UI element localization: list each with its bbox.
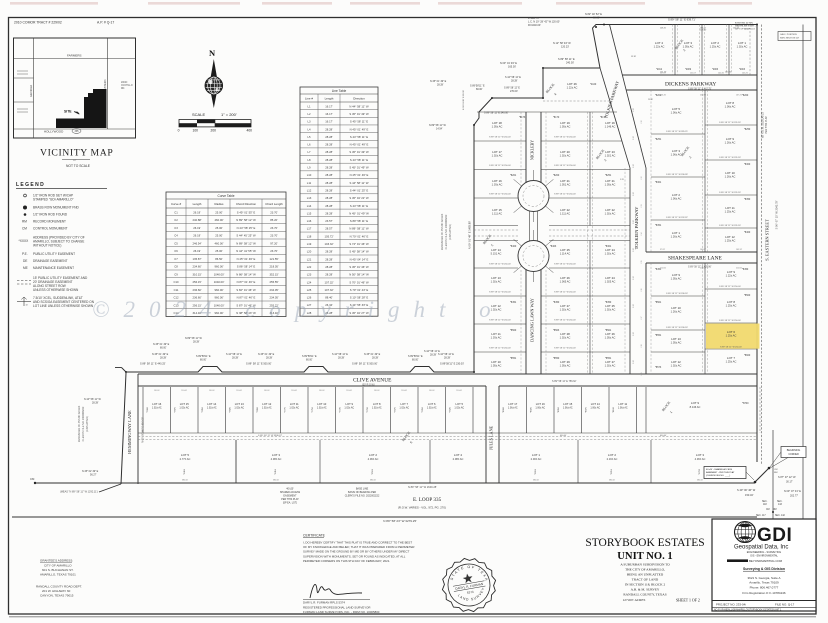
svg-text:2.28': 2.28' xyxy=(633,247,635,251)
svg-text:Line #: Line # xyxy=(305,96,313,100)
svg-text:1.02± AC: 1.02± AC xyxy=(289,407,299,410)
svg-text:110.00': 110.00' xyxy=(236,390,242,392)
svg-text:LOT 4: LOT 4 xyxy=(655,41,663,45)
svg-text:1.25± AC: 1.25± AC xyxy=(725,210,736,214)
svg-text:LOT 16: LOT 16 xyxy=(536,402,545,406)
svg-text:26.19': 26.19' xyxy=(193,226,201,230)
svg-text:L24: L24 xyxy=(307,280,312,284)
svg-text:*7675: *7675 xyxy=(395,406,397,413)
svg-text:LOT 10: LOT 10 xyxy=(491,360,501,364)
svg-text:56.27': 56.27' xyxy=(90,474,97,477)
svg-text:163.32': 163.32' xyxy=(736,249,743,251)
svg-text:S 45° 04' 22" W: S 45° 04' 22" W xyxy=(349,196,369,200)
svg-text:*8551: *8551 xyxy=(510,357,517,360)
svg-text:CALC. POSITION: CALC. POSITION xyxy=(780,33,797,36)
svg-text:ME: ME xyxy=(23,266,28,270)
svg-text:80.00': 80.00' xyxy=(200,359,207,362)
svg-text:N 00°01'49" E 80.00': N 00°01'49" E 80.00' xyxy=(463,89,465,110)
svg-text:BEYONDMAPPING.COM: BEYONDMAPPING.COM xyxy=(749,559,783,563)
svg-text:Amarillo, Texas 79109: Amarillo, Texas 79109 xyxy=(749,581,779,585)
svg-text:1.02± AC: 1.02± AC xyxy=(491,308,502,312)
svg-text:S 89° 58' 11" W 231.18': S 89° 58' 11" W 231.18' xyxy=(719,192,741,194)
svg-text:S 89° 58' 11" E: S 89° 58' 11" E xyxy=(350,219,368,223)
svg-text:270.00': 270.00' xyxy=(510,90,518,93)
svg-text:110.00': 110.00' xyxy=(154,390,160,392)
svg-text:S 89° 58' 11" W 250.00': S 89° 58' 11" W 250.00' xyxy=(554,348,576,350)
svg-text:*8350: *8350 xyxy=(605,301,612,304)
svg-text:23.70': 23.70' xyxy=(270,226,278,230)
svg-text:28.28': 28.28' xyxy=(325,143,333,147)
svg-text:BEGINNING: BEGINNING xyxy=(787,449,801,452)
svg-text:RD.: RD. xyxy=(121,88,125,90)
svg-text:*8251: *8251 xyxy=(605,174,612,177)
svg-text:Surveying & GIS Division: Surveying & GIS Division xyxy=(743,567,785,571)
svg-text:266.45': 266.45' xyxy=(660,95,667,97)
svg-text:LOT 2: LOT 2 xyxy=(369,453,377,457)
svg-text:2.28': 2.28' xyxy=(633,163,635,167)
svg-text:S 44° 01' 25" E: S 44° 01' 25" E xyxy=(350,188,369,192)
svg-text:C1: C1 xyxy=(174,210,178,214)
svg-text:*7700: *7700 xyxy=(367,406,369,413)
svg-text:L1: L1 xyxy=(307,104,311,108)
svg-text:LOT 16: LOT 16 xyxy=(605,121,615,125)
svg-text:*8551: *8551 xyxy=(605,357,612,360)
svg-text:*2501: *2501 xyxy=(372,468,374,475)
svg-text:C2: C2 xyxy=(174,218,178,222)
svg-text:LOT 14: LOT 14 xyxy=(207,402,216,406)
svg-text:DE: DE xyxy=(23,259,27,263)
svg-text:S 89° 58' 11" W 250.00': S 89° 58' 11" W 250.00' xyxy=(489,194,511,196)
svg-text:1.26± AC: 1.26± AC xyxy=(725,141,736,145)
svg-text:L19: L19 xyxy=(307,242,312,246)
svg-text:2010 COMOR TRACT # 229/02: 2010 COMOR TRACT # 229/02 xyxy=(14,21,62,25)
svg-text:28.28': 28.28' xyxy=(325,211,333,215)
svg-text:S 89° 58' 11" W 3936.87': S 89° 58' 11" W 3936.87' xyxy=(258,435,283,437)
svg-text:LOT 7: LOT 7 xyxy=(401,402,409,406)
svg-text:28.28': 28.28' xyxy=(325,127,333,131)
svg-text:201 W. HIGHWAY 60: 201 W. HIGHWAY 60 xyxy=(42,589,71,593)
svg-text:S 89° 58' 11" E 500.00': S 89° 58' 11" E 500.00' xyxy=(246,363,272,366)
svg-text:L19: L19 xyxy=(641,373,643,376)
svg-text:S 89° 58' 11" W 250.00': S 89° 58' 11" W 250.00' xyxy=(489,165,511,167)
svg-text:*8550: *8550 xyxy=(553,357,560,360)
svg-text:EASEMENT - PER THIS PLAT: EASEMENT - PER THIS PLAT xyxy=(706,471,735,474)
svg-text:0: 0 xyxy=(178,129,180,133)
svg-text:1.02± AC: 1.02± AC xyxy=(492,154,503,158)
svg-text:*8450: *8450 xyxy=(553,301,560,304)
svg-text:234.05': 234.05' xyxy=(270,288,279,292)
svg-text:L4: L4 xyxy=(307,127,311,131)
svg-text:N 44° 41' 55" W: N 44° 41' 55" W xyxy=(236,249,256,253)
svg-text:LOT 2: LOT 2 xyxy=(672,193,680,197)
svg-text:S 89° 58' 11" W 250.00': S 89° 58' 11" W 250.00' xyxy=(719,286,741,288)
svg-text:382.00': 382.00' xyxy=(609,480,616,482)
svg-text:1.05± AC: 1.05± AC xyxy=(560,125,571,129)
svg-text:1.25± AC: 1.25± AC xyxy=(726,304,737,308)
svg-text:N 44° 58' 11" W: N 44° 58' 11" W xyxy=(349,104,369,108)
svg-text:LOT 2: LOT 2 xyxy=(608,453,616,457)
svg-text:N 50° 58' 14" W: N 50° 58' 14" W xyxy=(349,273,369,277)
svg-text:1" = 200': 1" = 200' xyxy=(221,112,237,117)
svg-text:1.146 AC: 1.146 AC xyxy=(605,125,616,129)
svg-text:(UNPLATTED): (UNPLATTED) xyxy=(86,416,89,432)
svg-text:LOT 9: LOT 9 xyxy=(727,270,735,274)
svg-text:S 89° 58' 11" W 250.00': S 89° 58' 11" W 250.00' xyxy=(554,292,576,294)
svg-text:1.06± AC: 1.06± AC xyxy=(671,111,682,115)
svg-text:1.111 AC: 1.111 AC xyxy=(560,212,570,216)
svg-text:28.28': 28.28' xyxy=(430,354,437,357)
svg-text:26.19': 26.19' xyxy=(193,234,201,238)
svg-text:1.25± AC: 1.25± AC xyxy=(726,360,737,364)
svg-text:BEING AN UNPLATTED: BEING AN UNPLATTED xyxy=(627,573,664,577)
svg-text:80.00': 80.00' xyxy=(412,359,419,362)
svg-text:1.065 AC: 1.065 AC xyxy=(560,280,571,284)
svg-text:PER THIS PLAT: PER THIS PLAT xyxy=(765,116,768,134)
svg-text:*8301: *8301 xyxy=(605,245,612,248)
svg-text:1.05± AC: 1.05± AC xyxy=(492,125,503,129)
svg-text:1.25± AC: 1.25± AC xyxy=(725,239,736,243)
svg-text:110.00': 110.00' xyxy=(319,390,325,392)
svg-text:30.17': 30.17' xyxy=(786,481,793,484)
svg-text:N 44° 58' 25" E: N 44° 58' 25" E xyxy=(237,226,256,230)
svg-text:1.05± AC: 1.05± AC xyxy=(605,183,616,187)
svg-text:CM: CM xyxy=(766,509,770,511)
svg-text:660.00': 660.00' xyxy=(660,435,667,437)
svg-text:LOT 1: LOT 1 xyxy=(532,453,540,457)
svg-text:ENGINEERING - SURVEYING: ENGINEERING - SURVEYING xyxy=(747,551,781,554)
svg-text:N 89° 58' 11" W: N 89° 58' 11" W xyxy=(185,337,202,340)
svg-text:*8000: *8000 xyxy=(503,406,505,413)
svg-text:*8350: *8350 xyxy=(744,198,751,201)
svg-text:LOT 4: LOT 4 xyxy=(454,453,462,457)
svg-text:L3: L3 xyxy=(307,120,311,124)
svg-text:28.28': 28.28' xyxy=(325,196,333,200)
svg-text:SCALE: SCALE xyxy=(192,112,205,117)
svg-text:246.54': 246.54' xyxy=(193,241,202,245)
svg-text:157.07': 157.07' xyxy=(660,73,667,75)
svg-text:LOT 9: LOT 9 xyxy=(726,137,734,141)
svg-text:N 45° 01' 49" E: N 45° 01' 49" E xyxy=(350,127,369,131)
svg-text:*8501: *8501 xyxy=(605,329,612,332)
svg-text:L8: L8 xyxy=(307,158,311,162)
svg-text:LOT 6: LOT 6 xyxy=(727,330,735,334)
svg-text:28.28': 28.28' xyxy=(325,204,333,208)
svg-text:1.26± AC: 1.26± AC xyxy=(671,235,682,239)
svg-text:RM: RM xyxy=(774,472,778,474)
svg-text:S 89° 58' 11" W 250.00': S 89° 58' 11" W 250.00' xyxy=(554,165,576,167)
svg-text:4.06± AC: 4.06± AC xyxy=(368,457,379,461)
svg-text:S 89° 58' 11" E: S 89° 58' 11" E xyxy=(558,58,575,61)
svg-text:28.57': 28.57' xyxy=(325,227,333,231)
svg-text:28.28': 28.28' xyxy=(325,173,333,177)
svg-text:N 45° 01' 49" E: N 45° 01' 49" E xyxy=(430,80,447,83)
svg-text:C11: C11 xyxy=(174,288,179,292)
svg-text:LOT 14: LOT 14 xyxy=(491,248,501,252)
svg-text:LOT 26: LOT 26 xyxy=(605,332,615,336)
svg-text:310.15': 310.15' xyxy=(193,272,202,276)
svg-text:*7725: *7725 xyxy=(340,406,342,413)
svg-text:660.00': 660.00' xyxy=(560,435,567,437)
svg-text:121.55': 121.55' xyxy=(270,257,279,261)
svg-text:S 89° 58' 11" E 467.75': S 89° 58' 11" E 467.75' xyxy=(688,88,712,90)
svg-text:S 44° 45' 25" W: S 44° 45' 25" W xyxy=(236,234,256,238)
svg-text:*8200: *8200 xyxy=(742,94,749,97)
svg-text:S 89° 58' 11" W 232.32': S 89° 58' 11" W 232.32' xyxy=(666,217,688,219)
svg-text:1040.00': 1040.00' xyxy=(214,280,225,284)
svg-text:UNLESS OTHERWISE SHOWN: UNLESS OTHERWISE SHOWN xyxy=(33,288,79,292)
svg-text:CONTROL MONUMENT: CONTROL MONUMENT xyxy=(33,226,68,230)
svg-text:N 89° 58' 11" W: N 89° 58' 11" W xyxy=(349,227,369,231)
svg-text:151.07': 151.07' xyxy=(690,73,697,75)
svg-text:LOT 13: LOT 13 xyxy=(671,337,681,341)
svg-text:*XXXX: *XXXX xyxy=(19,239,30,243)
svg-text:S 45° 01' 55" E: S 45° 01' 55" E xyxy=(237,210,256,214)
svg-text:CORNER: CORNER xyxy=(788,453,799,456)
svg-text:*7625: *7625 xyxy=(450,406,452,413)
svg-text:N 70° 01' 46" E: N 70° 01' 46" E xyxy=(350,234,369,238)
svg-text:1.06± AC: 1.06± AC xyxy=(535,407,545,410)
svg-text:(CLERKS FILE NO. ____): (CLERKS FILE NO. ____) xyxy=(706,475,730,477)
svg-text:S 89° 58' 11" W 236.18': S 89° 58' 11" W 236.18' xyxy=(666,327,688,329)
svg-text:1.02± AC: 1.02± AC xyxy=(179,407,189,410)
svg-text:80.00': 80.00' xyxy=(306,359,313,362)
svg-text:LOT 20: LOT 20 xyxy=(560,150,570,154)
svg-text:2.28': 2.28' xyxy=(633,359,635,363)
svg-text:26.19': 26.19' xyxy=(193,249,201,253)
svg-text:FILE NO. Q-17: FILE NO. Q-17 xyxy=(775,602,795,606)
svg-text:*8173: *8173 xyxy=(519,116,526,119)
svg-text:S 89° 58' 11" W 250.00': S 89° 58' 11" W 250.00' xyxy=(489,292,511,294)
svg-text:RM: RM xyxy=(22,220,27,224)
svg-text:LOT 13: LOT 13 xyxy=(235,402,244,406)
svg-text:145.25': 145.25' xyxy=(725,72,732,74)
svg-text:25.00': 25.00' xyxy=(215,226,223,230)
svg-text:85.20': 85.20' xyxy=(270,218,278,222)
svg-text:A SUBURBAN SUBDIVISION TO: A SUBURBAN SUBDIVISION TO xyxy=(620,563,670,567)
svg-text:LOT 11: LOT 11 xyxy=(725,206,735,210)
svg-text:*4100: *4100 xyxy=(590,83,597,86)
svg-text:210.00': 210.00' xyxy=(736,268,743,270)
svg-text:S 89°58'11" E 230.00': S 89°58'11" E 230.00' xyxy=(440,363,465,366)
svg-text:S 89° 58' 11" W 285.25': S 89° 58' 11" W 285.25' xyxy=(666,131,688,133)
svg-text:460.00': 460.00' xyxy=(215,241,224,245)
svg-text:23.70': 23.70' xyxy=(270,234,278,238)
svg-text:25.00': 25.00' xyxy=(215,234,223,238)
svg-text:2.28': 2.28' xyxy=(633,219,635,223)
svg-text:*7800: *7800 xyxy=(257,406,259,413)
svg-text:S 89° 58' 11" W 250.00': S 89° 58' 11" W 250.00' xyxy=(554,137,576,139)
svg-text:240.00': 240.00' xyxy=(566,62,575,65)
svg-text:S 89° 58' 11" W 250.00': S 89° 58' 11" W 250.00' xyxy=(554,264,576,266)
svg-text:N 12° 58' 04" W: N 12° 58' 04" W xyxy=(553,42,571,45)
svg-text:Length: Length xyxy=(193,202,202,206)
svg-text:I, DO HEREBY CERTIFY THAT THIS: I, DO HEREBY CERTIFY THAT THIS PLAT IS T… xyxy=(303,541,412,545)
svg-text:Curve #: Curve # xyxy=(171,202,182,206)
svg-text:E. LOOP 335: E. LOOP 335 xyxy=(413,497,442,503)
svg-text:CITY OF AMARILLO: CITY OF AMARILLO xyxy=(44,564,72,568)
svg-text:1.05± AC: 1.05± AC xyxy=(671,277,682,281)
svg-text:28.28': 28.28' xyxy=(511,80,518,83)
svg-text:1.22± AC: 1.22± AC xyxy=(726,274,737,278)
svg-text:S 45° 01' 49" W: S 45° 01' 49" W xyxy=(349,112,369,116)
svg-text:218.05': 218.05' xyxy=(270,265,279,269)
svg-text:382.00': 382.00' xyxy=(370,480,377,482)
svg-text:1.02± AC: 1.02± AC xyxy=(605,252,616,256)
svg-text:1.02± AC: 1.02± AC xyxy=(344,407,354,410)
svg-text:GEORGIA: GEORGIA xyxy=(29,85,33,97)
svg-text:LOT 21: LOT 21 xyxy=(605,179,615,183)
svg-text:*2006: *2006 xyxy=(712,69,719,71)
svg-text:2.00± AC: 2.00± AC xyxy=(531,457,542,461)
svg-text:LOT 24: LOT 24 xyxy=(605,248,615,252)
svg-text:2.28': 2.28' xyxy=(633,191,635,195)
svg-text:S 45° 58' 11" E: S 45° 58' 11" E xyxy=(350,120,368,124)
svg-text:LOT 11: LOT 11 xyxy=(290,402,299,406)
svg-text:LOT 13: LOT 13 xyxy=(491,276,501,280)
svg-text:234.60': 234.60' xyxy=(193,265,202,269)
svg-text:1.22± AC: 1.22± AC xyxy=(654,45,665,49)
svg-text:L20: L20 xyxy=(307,250,312,254)
svg-text:107.32': 107.32' xyxy=(325,280,334,284)
svg-text:135.87': 135.87' xyxy=(193,257,202,261)
svg-text:1.06± AC: 1.06± AC xyxy=(508,407,518,410)
svg-text:N 89° 58' 11" W 2649.28': N 89° 58' 11" W 2649.28' xyxy=(408,485,437,489)
svg-text:*8171: *8171 xyxy=(600,116,607,119)
svg-text:2.08± AC: 2.08± AC xyxy=(453,457,464,461)
svg-text:2.28': 2.28' xyxy=(633,275,635,279)
svg-text:S 89° 58' 11" W 250.00': S 89° 58' 11" W 250.00' xyxy=(489,320,511,322)
svg-text:236.60': 236.60' xyxy=(193,288,202,292)
svg-text:28.28': 28.28' xyxy=(444,357,451,360)
svg-text:28.28': 28.28' xyxy=(193,341,200,344)
svg-text:1.06± AC: 1.06± AC xyxy=(725,105,736,109)
svg-text:145.25': 145.25' xyxy=(742,73,749,75)
svg-text:S 89° 58' 11" W 231.18': S 89° 58' 11" W 231.18' xyxy=(719,122,741,124)
svg-text:352.15': 352.15' xyxy=(270,272,279,276)
svg-text:960.00': 960.00' xyxy=(215,265,224,269)
svg-text:1.05± AC: 1.05± AC xyxy=(560,364,571,368)
svg-text:STORYBOOK ESTATES: STORYBOOK ESTATES xyxy=(585,537,704,549)
svg-text:110.00': 110.00' xyxy=(401,390,407,392)
svg-text:S 89° 58' 11" E 500.00': S 89° 58' 11" E 500.00' xyxy=(352,363,378,366)
svg-text:120.23': 120.23' xyxy=(561,46,570,49)
svg-text:L7: L7 xyxy=(307,150,311,154)
svg-text:26.19': 26.19' xyxy=(193,210,201,214)
svg-text:C10: C10 xyxy=(173,280,179,284)
svg-text:LOT 26: LOT 26 xyxy=(560,276,570,280)
svg-text:1.05± AC: 1.05± AC xyxy=(491,364,502,368)
svg-text:S 89° 58' 11" W 250.00': S 89° 58' 11" W 250.00' xyxy=(489,264,511,266)
svg-text:210.00': 210.00' xyxy=(660,268,667,270)
svg-text:LOT 15: LOT 15 xyxy=(492,208,502,212)
svg-text:CM: CM xyxy=(22,226,27,230)
svg-text:110.00': 110.00' xyxy=(346,390,352,392)
svg-text:2004±: 2004± xyxy=(121,82,128,84)
svg-text:*8600: *8600 xyxy=(744,354,751,357)
svg-text:86.50': 86.50' xyxy=(215,257,223,261)
svg-text:N 45° 01' 49" E: N 45° 01' 49" E xyxy=(237,257,256,261)
svg-text:CLERK'S FILE NO. 2022003222: CLERK'S FILE NO. 2022003222 xyxy=(345,495,380,498)
svg-text:S 87° 07' 12" W: S 87° 07' 12" W xyxy=(778,476,796,479)
svg-text:LOT 10: LOT 10 xyxy=(317,402,326,406)
svg-text:TOLKIEN PARKWAY: TOLKIEN PARKWAY xyxy=(634,206,639,250)
svg-text:107.32': 107.32' xyxy=(325,288,334,292)
svg-text:S 89° 58' 11" W 250.00': S 89° 58' 11" W 250.00' xyxy=(554,320,576,322)
svg-text:*2401: *2401 xyxy=(184,468,186,475)
svg-text:1.25± AC: 1.25± AC xyxy=(726,334,737,338)
svg-text:1.02± AC: 1.02± AC xyxy=(399,407,409,410)
svg-text:1.02± AC: 1.02± AC xyxy=(737,45,748,49)
svg-text:28.28': 28.28' xyxy=(325,158,333,162)
svg-text:LOT 12: LOT 12 xyxy=(671,360,681,364)
svg-text:1.05± AC: 1.05± AC xyxy=(605,336,616,340)
svg-text:S 40° 00' 46" W: S 40° 00' 46" W xyxy=(737,488,756,492)
svg-text:3621 S. Georgia, Suite A: 3621 S. Georgia, Suite A xyxy=(747,576,780,580)
svg-text:FURMAN LAND SURVEYORS, INC. -: FURMAN LAND SURVEYORS, INC. - FIRM NO. 1… xyxy=(303,610,380,614)
svg-text:1.02± AC: 1.02± AC xyxy=(207,407,217,410)
svg-text:S 82° 01' 46" W: S 82° 01' 46" W xyxy=(236,288,256,292)
svg-text:SUPERVISION WITH MONUMENTS, SE: SUPERVISION WITH MONUMENTS, SET OR FOUND… xyxy=(303,554,406,558)
svg-text:(MEAS "N 89° 58' 11" W 1292.11: (MEAS "N 89° 58' 11" W 1292.11') xyxy=(60,491,98,494)
svg-text:23.57': 23.57' xyxy=(325,219,333,223)
svg-text:1.02± AC: 1.02± AC xyxy=(560,308,571,312)
svg-text:L12: L12 xyxy=(307,188,312,192)
svg-text:S 86° 58' 14" E: S 86° 58' 14" E xyxy=(237,265,256,269)
svg-text:110.00': 110.00' xyxy=(181,390,187,392)
svg-text:SITE: SITE xyxy=(64,110,72,114)
svg-text:Direction: Direction xyxy=(353,96,365,100)
svg-text:WITHOUT NOTICE): WITHOUT NOTICE) xyxy=(33,244,61,248)
svg-text:*7825: *7825 xyxy=(230,406,232,413)
svg-text:L13: L13 xyxy=(307,196,312,200)
svg-text:WATERLINE ESMT -: WATERLINE ESMT - xyxy=(735,25,756,28)
svg-text:1.02± AC: 1.02± AC xyxy=(605,308,616,312)
svg-text:2.16± AC: 2.16± AC xyxy=(607,457,618,461)
svg-text:LOT 16: LOT 16 xyxy=(152,402,161,406)
svg-text:*8450: *8450 xyxy=(742,268,749,271)
svg-text:L5: L5 xyxy=(307,135,311,139)
svg-text:RECORD MONUMENT: RECORD MONUMENT xyxy=(33,220,66,224)
svg-text:N 86° 58' 14" W: N 86° 58' 14" W xyxy=(236,272,256,276)
svg-text:S 74° 01' 46" W: S 74° 01' 46" W xyxy=(349,242,369,246)
svg-text:LOT 5: LOT 5 xyxy=(181,453,189,457)
svg-text:28.28': 28.28' xyxy=(325,166,333,170)
svg-text:*8500: *8500 xyxy=(744,294,751,297)
svg-text:L=428.75': L=428.75' xyxy=(528,17,539,20)
svg-text:LOT 28: LOT 28 xyxy=(560,332,570,336)
svg-text:L15: L15 xyxy=(307,211,312,215)
svg-text:*8250: *8250 xyxy=(744,128,751,131)
svg-text:LOT 19: LOT 19 xyxy=(560,121,570,125)
svg-text:CM: CM xyxy=(774,469,778,471)
svg-text:(5P EA. LOT): (5P EA. LOT) xyxy=(283,502,298,505)
svg-text:1.05± AC: 1.05± AC xyxy=(683,45,694,49)
svg-text:SURVEY MADE ON THE GROUND BY M: SURVEY MADE ON THE GROUND BY ME OR BY OT… xyxy=(303,550,410,554)
svg-text:S 89° 58' 11" W 250.00': S 89° 58' 11" W 250.00' xyxy=(719,320,741,322)
svg-text:80.00': 80.00' xyxy=(160,347,167,350)
svg-text:NO P:\ RANDALL\08\AMARILLO\STO: NO P:\ RANDALL\08\AMARILLO\STORYBOOK EST… xyxy=(714,609,782,612)
svg-text:L21: L21 xyxy=(307,257,312,261)
svg-text:*2651: *2651 xyxy=(611,468,613,475)
svg-text:S 44° 58' 11" E: S 44° 58' 11" E xyxy=(350,158,368,162)
svg-text:1.02± AC: 1.02± AC xyxy=(560,336,571,340)
svg-text:GRANTEE'S ADDRESS:: GRANTEE'S ADDRESS: xyxy=(40,559,73,563)
svg-text:S 89° 58' 11" E 440.25': S 89° 58' 11" E 440.25' xyxy=(140,363,166,366)
svg-text:S 89° 58' 11" W 250.00': S 89° 58' 11" W 250.00' xyxy=(489,348,511,350)
svg-text:C6: C6 xyxy=(174,249,178,253)
svg-text:S 89° 58' 11" E 939.71': S 89° 58' 11" E 939.71' xyxy=(668,18,696,22)
svg-text:Curve Table: Curve Table xyxy=(218,194,235,198)
